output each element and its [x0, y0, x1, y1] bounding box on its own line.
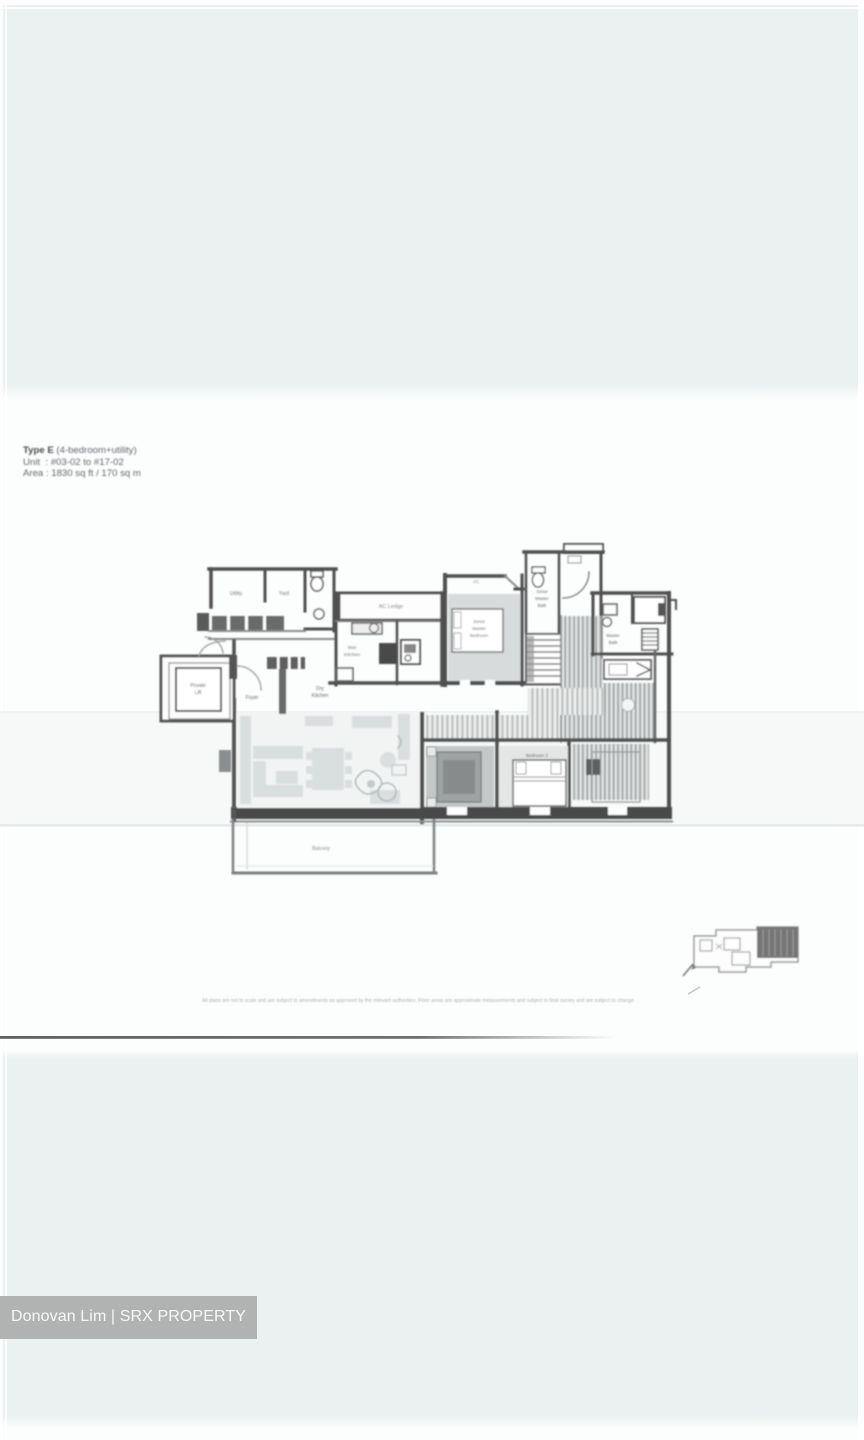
svg-text:Bath: Bath [538, 603, 547, 608]
svg-text:Master: Master [535, 596, 549, 601]
svg-text:Master: Master [606, 633, 620, 638]
svg-text:Bedroom: Bedroom [470, 633, 489, 638]
svg-text:AC Ledge: AC Ledge [379, 604, 403, 610]
svg-text:Balcony: Balcony [312, 846, 330, 852]
svg-text:Junior: Junior [473, 619, 486, 624]
svg-text:Kitchen: Kitchen [344, 652, 360, 658]
svg-text:AC: AC [473, 579, 480, 584]
svg-text:Junior: Junior [536, 589, 548, 594]
svg-text:Kitchen: Kitchen [312, 693, 329, 699]
svg-text:Foyer: Foyer [246, 695, 259, 701]
svg-text:Private: Private [190, 683, 206, 689]
svg-text:Utility: Utility [230, 591, 243, 597]
svg-text:Wet: Wet [348, 645, 357, 651]
svg-text:Lift: Lift [195, 690, 202, 696]
svg-text:Bath: Bath [609, 640, 618, 645]
svg-text:Bedroom 2: Bedroom 2 [526, 753, 549, 758]
svg-text:Dry: Dry [316, 686, 324, 692]
svg-text:Master: Master [472, 626, 486, 631]
svg-text:Yard: Yard [279, 591, 289, 597]
